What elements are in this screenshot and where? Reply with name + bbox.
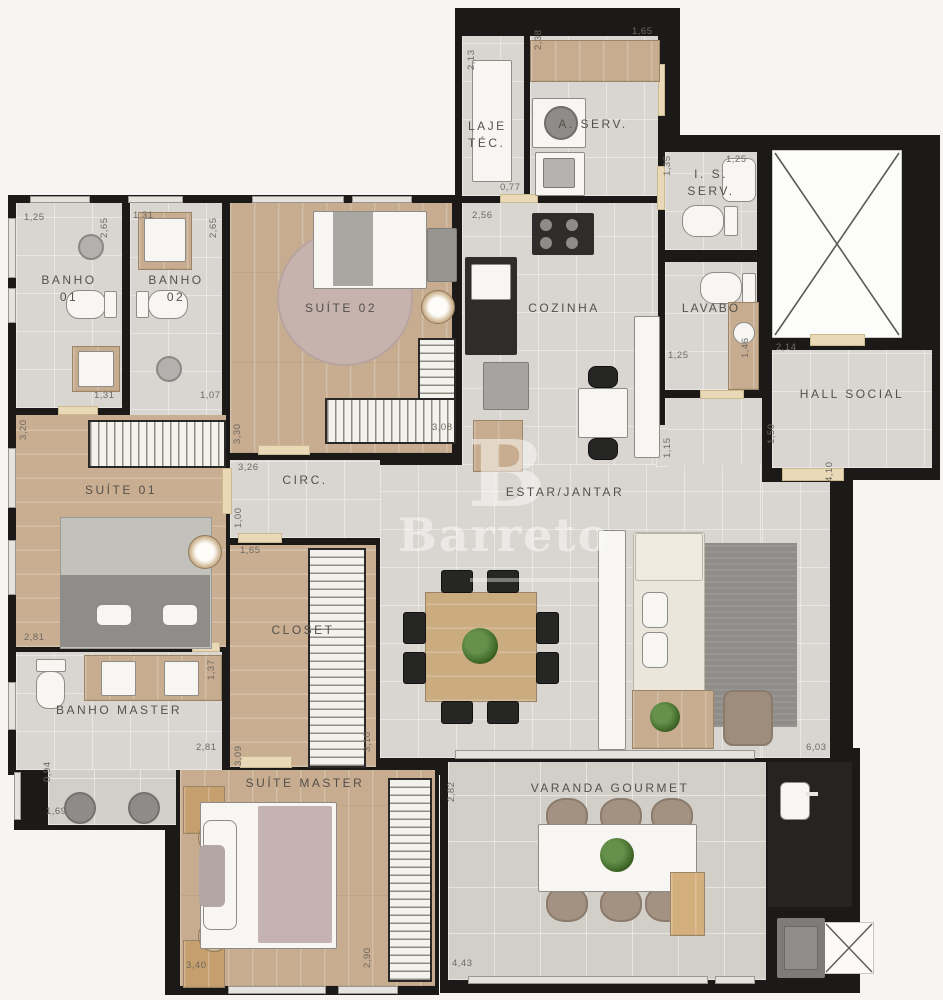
window-suite02-top-b xyxy=(352,196,412,203)
banho02-sink xyxy=(144,218,186,262)
floor-circ xyxy=(230,460,380,538)
shower-drain-b xyxy=(128,792,160,824)
banho01-toilet xyxy=(66,290,106,319)
sliding-door-varanda xyxy=(455,750,755,759)
suite-master-wardrobe xyxy=(388,778,432,982)
window-banho01-b xyxy=(8,288,16,323)
door-elevator-hall xyxy=(810,334,865,346)
duct-shaft xyxy=(824,922,874,974)
kitchen-pass-counter xyxy=(634,316,660,458)
banho01-sink xyxy=(78,351,114,387)
laje-duct xyxy=(472,60,512,182)
window-suite-master-b xyxy=(338,986,398,994)
burner-2 xyxy=(566,219,578,231)
coffee-table-plant xyxy=(650,702,680,732)
window-suite-master-a xyxy=(228,986,326,994)
elevator-shaft xyxy=(772,150,902,338)
floor-corridor xyxy=(665,398,762,468)
dining-plant xyxy=(462,628,498,664)
lavabo-sink xyxy=(733,322,755,344)
lavabo-toilet xyxy=(700,272,742,304)
grill-box-inner xyxy=(784,926,818,970)
dining-chair-8 xyxy=(536,652,559,684)
window-suite01-b xyxy=(8,540,16,595)
window-suite01-a xyxy=(8,448,16,508)
armchair xyxy=(723,690,773,746)
door-suite02 xyxy=(258,445,310,455)
is-serv-toilet xyxy=(682,205,724,237)
door-lavabo xyxy=(700,390,744,399)
washer-drum-icon xyxy=(544,106,578,140)
dining-chair-3 xyxy=(441,701,473,724)
kitchen-chair-bottom xyxy=(588,438,618,460)
suite02-lamp xyxy=(421,290,455,324)
banho-master-sink-b xyxy=(164,661,199,696)
window-banho01-a xyxy=(8,218,16,278)
suite02-bed-throw xyxy=(333,212,373,286)
door-laje-passage xyxy=(500,194,538,203)
lavabo-toilet-tank xyxy=(742,273,756,303)
dining-chair-7 xyxy=(536,612,559,644)
kitchen-fridge xyxy=(483,362,529,410)
suite-master-blanket xyxy=(258,806,332,943)
varanda-plant xyxy=(600,838,634,872)
banho-master-toilet xyxy=(36,671,65,709)
floor-plan: B Barreto LAJE TÉC. A. SERV. I. S. SERV.… xyxy=(0,0,943,1000)
suite02-nightstand xyxy=(427,228,457,282)
suite-master-throw xyxy=(199,845,225,907)
varanda-cabinet xyxy=(670,872,705,936)
closet-wardrobe xyxy=(308,548,366,768)
door-is-serv xyxy=(657,166,665,210)
window-banhos-top-b xyxy=(128,196,183,203)
tv-panel xyxy=(598,530,626,750)
suite02-wardrobe-vertical xyxy=(418,338,456,404)
suite01-pillow-b xyxy=(162,604,198,626)
is-serv-toilet-tank xyxy=(724,206,738,236)
sofa-chaise xyxy=(635,533,703,581)
banho02-toilet xyxy=(148,290,188,319)
dining-chair-4 xyxy=(487,701,519,724)
banho01-shower-head xyxy=(78,234,104,260)
door-hall-estar xyxy=(782,468,844,481)
laundry-tank-basin xyxy=(543,158,575,188)
window-banhos-top-a xyxy=(30,196,90,203)
kitchen-chair-top xyxy=(588,366,618,388)
sofa-cushion-b xyxy=(642,632,668,668)
window-varanda-b xyxy=(715,976,755,984)
door-suite01 xyxy=(222,468,232,514)
window-shower xyxy=(14,772,21,820)
suite01-pillow-a xyxy=(96,604,132,626)
brand-tagline-bar xyxy=(470,578,600,582)
kitchen-table xyxy=(578,388,628,438)
dining-chair-5 xyxy=(403,612,426,644)
is-serv-sink xyxy=(722,158,756,202)
aserv-counter xyxy=(530,40,660,82)
grill-sink xyxy=(780,782,810,820)
kitchen-cabinet xyxy=(473,420,523,472)
burner-4 xyxy=(566,237,578,249)
floor-hall-social xyxy=(772,350,932,468)
banho-master-sink-a xyxy=(101,661,136,696)
door-suite-master xyxy=(240,756,292,768)
kitchen-sink xyxy=(471,264,511,300)
window-varanda-a xyxy=(468,976,708,984)
banho01-toilet-tank xyxy=(104,291,117,318)
banho02-shower-head xyxy=(156,356,182,382)
suite01-wardrobe xyxy=(88,420,226,468)
burner-1 xyxy=(540,219,552,231)
dining-chair-1 xyxy=(441,570,473,593)
window-suite02-top-a xyxy=(252,196,344,203)
dining-chair-6 xyxy=(403,652,426,684)
sofa-cushion-a xyxy=(642,592,668,628)
window-banho-master xyxy=(8,682,16,730)
shower-drain-a xyxy=(64,792,96,824)
suite02-wardrobe-horizontal xyxy=(325,398,456,444)
suite01-side-table xyxy=(188,535,222,569)
door-closet xyxy=(238,533,282,543)
door-banho01 xyxy=(58,406,98,415)
burner-3 xyxy=(540,237,552,249)
grill-sink-faucet xyxy=(806,792,818,796)
lavabo-vanity xyxy=(728,302,759,390)
